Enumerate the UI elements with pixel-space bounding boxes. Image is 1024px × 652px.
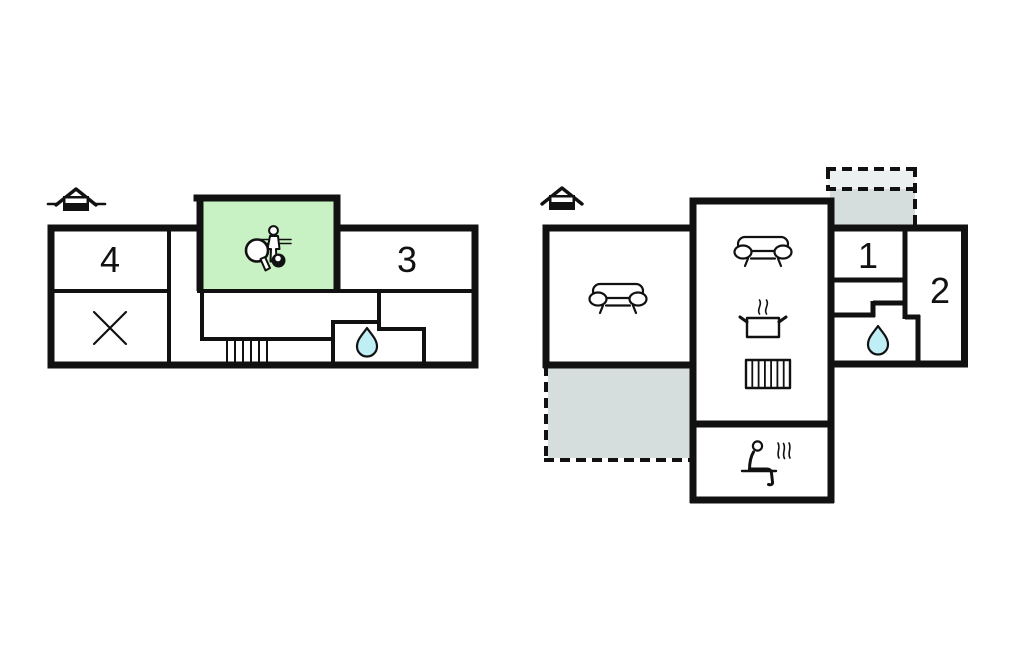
water-drop-icon <box>868 326 888 355</box>
radiator-icon <box>746 360 790 388</box>
closet-x-icon <box>94 312 126 344</box>
house-entrance-icon <box>48 189 105 211</box>
floorplan-canvas: 4 3 1 2 <box>0 0 1024 652</box>
sofa-icon <box>735 237 792 266</box>
stairs-icon <box>227 341 267 362</box>
room-label-4: 4 <box>100 242 120 278</box>
sofa-icon <box>590 284 647 313</box>
sauna-icon <box>742 441 790 484</box>
room-label-2: 2 <box>930 273 950 309</box>
water-drop-icon <box>357 328 377 357</box>
house-entrance-icon <box>542 188 582 210</box>
floorplan-drawing <box>0 0 1024 652</box>
billiard-ball-icon <box>272 254 286 268</box>
room-label-3: 3 <box>397 242 417 278</box>
cooking-pot-icon <box>740 300 786 337</box>
terrace-dashed-area-bottom <box>544 366 691 460</box>
terrace-dashed-area-top <box>826 167 917 227</box>
ground-floor-plan <box>542 167 968 503</box>
room-label-1: 1 <box>858 238 878 274</box>
